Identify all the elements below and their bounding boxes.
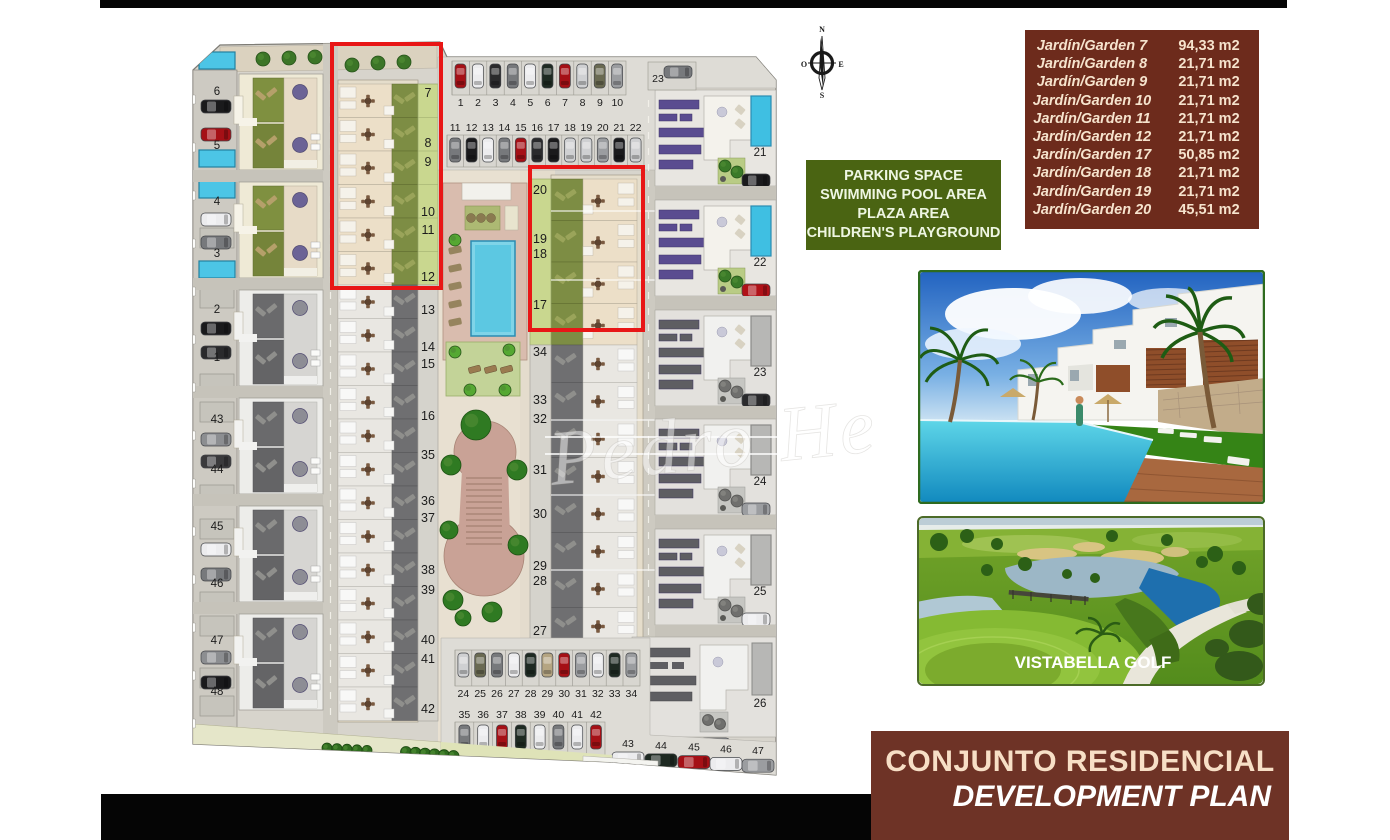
svg-text:6: 6 [545, 97, 551, 109]
svg-text:17: 17 [548, 122, 560, 134]
svg-text:E: E [838, 60, 843, 69]
svg-text:5: 5 [214, 140, 220, 152]
svg-text:42: 42 [590, 709, 602, 721]
svg-text:41: 41 [571, 709, 583, 721]
svg-text:43: 43 [211, 414, 224, 426]
svg-text:18: 18 [564, 122, 576, 134]
svg-text:5: 5 [527, 97, 533, 109]
svg-text:14: 14 [499, 122, 511, 134]
svg-text:O: O [801, 60, 807, 69]
svg-text:13: 13 [482, 122, 494, 134]
svg-text:40: 40 [553, 709, 565, 721]
svg-text:37: 37 [421, 511, 435, 525]
svg-text:26: 26 [754, 698, 767, 710]
svg-text:21: 21 [754, 147, 767, 159]
svg-text:47: 47 [752, 745, 764, 757]
svg-text:27: 27 [533, 624, 547, 638]
svg-text:6: 6 [214, 86, 220, 98]
svg-text:2: 2 [214, 304, 220, 316]
svg-text:44: 44 [655, 740, 667, 752]
svg-text:3: 3 [214, 248, 220, 260]
svg-text:8: 8 [425, 136, 432, 150]
svg-text:42: 42 [421, 702, 435, 716]
svg-text:31: 31 [575, 688, 587, 700]
svg-text:4: 4 [510, 97, 516, 109]
svg-text:34: 34 [626, 688, 638, 700]
svg-text:40: 40 [421, 633, 435, 647]
svg-text:39: 39 [534, 709, 546, 721]
svg-text:15: 15 [515, 122, 527, 134]
svg-text:48: 48 [211, 686, 224, 698]
svg-text:16: 16 [531, 122, 543, 134]
svg-text:23: 23 [754, 367, 767, 379]
svg-text:38: 38 [421, 563, 435, 577]
svg-text:17: 17 [533, 298, 547, 312]
svg-text:36: 36 [477, 709, 489, 721]
svg-text:10: 10 [611, 97, 623, 109]
svg-text:43: 43 [622, 738, 634, 750]
svg-text:20: 20 [597, 122, 609, 134]
svg-text:33: 33 [609, 688, 621, 700]
svg-text:35: 35 [459, 709, 471, 721]
svg-text:35: 35 [421, 448, 435, 462]
svg-text:9: 9 [425, 155, 432, 169]
svg-text:22: 22 [630, 122, 642, 134]
svg-text:29: 29 [542, 688, 554, 700]
svg-text:30: 30 [558, 688, 570, 700]
svg-text:19: 19 [581, 122, 593, 134]
svg-text:8: 8 [580, 97, 586, 109]
svg-text:26: 26 [491, 688, 503, 700]
svg-text:7: 7 [562, 97, 568, 109]
svg-text:46: 46 [211, 578, 224, 590]
svg-text:4: 4 [214, 196, 221, 208]
svg-text:23: 23 [652, 73, 664, 85]
svg-text:1: 1 [458, 97, 464, 109]
svg-text:45: 45 [211, 521, 224, 533]
svg-text:18: 18 [533, 247, 547, 261]
svg-text:VISTABELLA GOLF: VISTABELLA GOLF [1015, 653, 1172, 672]
svg-text:30: 30 [533, 507, 547, 521]
svg-text:31: 31 [533, 463, 547, 477]
svg-text:12: 12 [466, 122, 478, 134]
svg-text:29: 29 [533, 559, 547, 573]
svg-text:25: 25 [754, 586, 767, 598]
svg-text:45: 45 [688, 742, 700, 754]
svg-text:24: 24 [458, 688, 470, 700]
svg-text:21: 21 [613, 122, 625, 134]
svg-text:11: 11 [450, 122, 461, 134]
svg-text:27: 27 [508, 688, 520, 700]
svg-text:2: 2 [475, 97, 481, 109]
svg-text:19: 19 [533, 232, 547, 246]
svg-text:14: 14 [421, 340, 435, 354]
svg-text:25: 25 [474, 688, 486, 700]
svg-text:13: 13 [421, 303, 435, 317]
svg-text:12: 12 [421, 270, 435, 284]
svg-text:22: 22 [754, 257, 767, 269]
svg-text:11: 11 [422, 223, 435, 237]
svg-text:28: 28 [525, 688, 537, 700]
svg-text:1: 1 [214, 352, 220, 364]
svg-text:20: 20 [533, 183, 547, 197]
svg-text:47: 47 [211, 635, 224, 647]
svg-text:37: 37 [496, 709, 508, 721]
svg-text:38: 38 [515, 709, 527, 721]
svg-text:39: 39 [421, 583, 435, 597]
svg-text:3: 3 [493, 97, 499, 109]
svg-text:28: 28 [533, 574, 547, 588]
svg-text:34: 34 [533, 345, 547, 359]
svg-text:44: 44 [211, 464, 224, 476]
svg-text:10: 10 [421, 205, 435, 219]
svg-text:33: 33 [533, 393, 547, 407]
svg-text:N: N [819, 25, 825, 34]
svg-text:15: 15 [421, 357, 435, 371]
svg-text:46: 46 [720, 743, 732, 755]
svg-text:7: 7 [425, 86, 432, 100]
svg-text:32: 32 [592, 688, 604, 700]
svg-text:36: 36 [421, 494, 435, 508]
svg-text:9: 9 [597, 97, 603, 109]
svg-text:41: 41 [421, 652, 435, 666]
svg-text:S: S [820, 91, 825, 100]
svg-text:16: 16 [421, 409, 435, 423]
